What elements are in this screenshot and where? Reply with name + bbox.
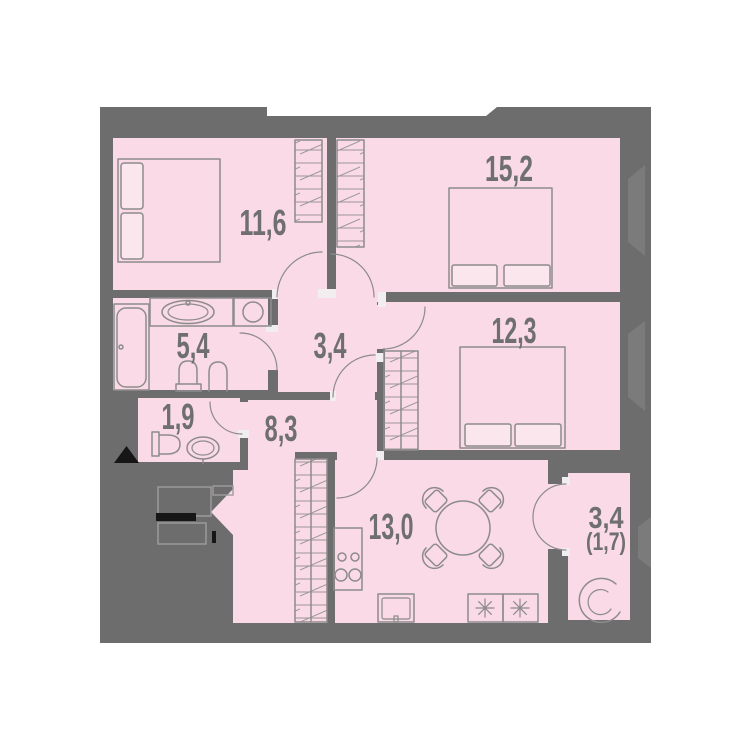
neighbor-balcony <box>628 165 645 256</box>
wardrobe-icon <box>295 140 322 222</box>
neighbor-balcony <box>628 321 645 411</box>
floor-plan: 11,6 15,2 3,4 5,4 12,3 1,9 8,3 13,0 3,4 … <box>0 0 750 750</box>
label-bathroom-area: 5,4 <box>177 325 210 366</box>
entrance-door-leaf <box>156 513 196 521</box>
label-corridor-area: 8,3 <box>265 408 298 449</box>
door-opening-bedroom-3 <box>375 305 387 349</box>
pillow-icon <box>465 424 511 446</box>
door-opening-balcony <box>546 484 568 549</box>
label-bedroom-2-area: 15,2 <box>485 148 533 189</box>
top-wall-notch <box>267 107 497 116</box>
label-bedroom-3-area: 12,3 <box>492 310 537 351</box>
door-opening-bathroom <box>266 330 280 370</box>
label-kitchen-living-area: 13,0 <box>369 506 414 547</box>
pillow-icon <box>504 265 550 286</box>
pillow-icon <box>452 265 497 286</box>
door-stop-mark <box>212 531 216 543</box>
label-wc-area: 1,9 <box>162 396 195 437</box>
label-balcony-reduced-area: (1,7) <box>586 528 626 556</box>
wardrobe-icon <box>337 140 364 247</box>
jamb <box>376 353 384 362</box>
door-opening-hall-corridor <box>333 390 375 401</box>
pillow-icon <box>121 163 143 209</box>
pillow-icon <box>515 424 561 446</box>
pillow-icon <box>121 213 143 259</box>
jamb <box>378 292 386 307</box>
jamb <box>562 548 570 556</box>
label-bedroom-1-area: 11,6 <box>240 202 287 243</box>
star-symbol-icon <box>511 599 529 617</box>
star-symbol-icon <box>476 599 494 617</box>
jamb <box>318 289 336 298</box>
label-hallway-area: 3,4 <box>314 325 347 366</box>
